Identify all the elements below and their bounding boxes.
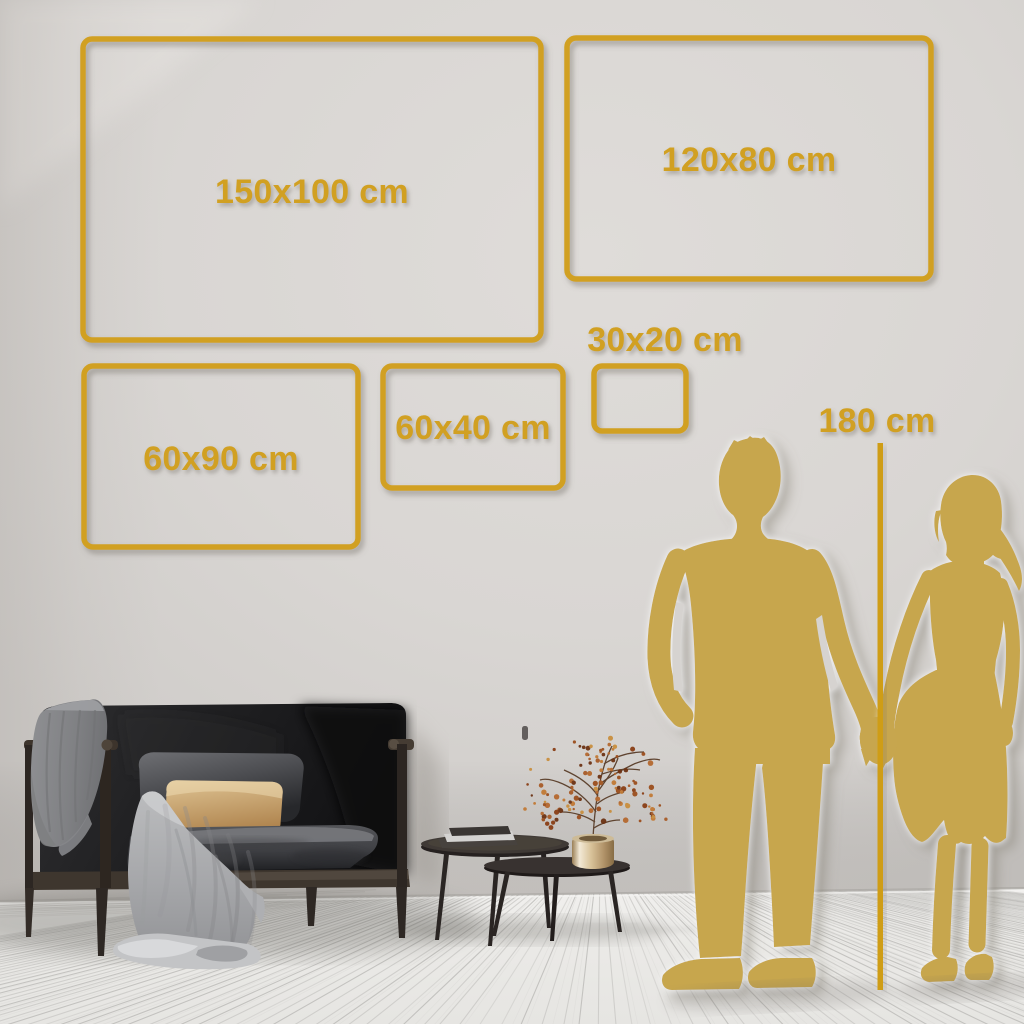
svg-text:30x20 cm: 30x20 cm: [587, 321, 743, 359]
svg-text:60x40 cm: 60x40 cm: [395, 409, 551, 447]
svg-text:60x90 cm: 60x90 cm: [143, 440, 299, 478]
svg-text:180 cm: 180 cm: [818, 402, 935, 440]
svg-text:120x80 cm: 120x80 cm: [662, 141, 837, 179]
svg-text:150x100 cm: 150x100 cm: [215, 173, 409, 211]
